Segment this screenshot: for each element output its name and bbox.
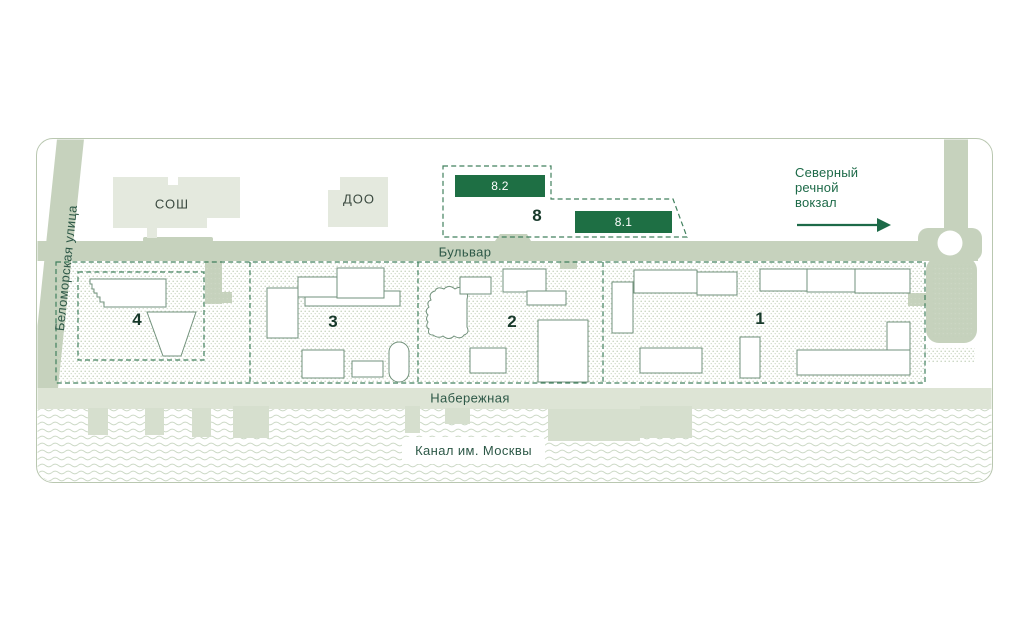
building-8-1[interactable]: 8.1	[575, 211, 672, 233]
canal-label-box: Канал им. Москвы	[402, 437, 545, 464]
building-8-2-label: 8.2	[491, 179, 509, 193]
plot-4-number[interactable]: 4	[132, 310, 141, 330]
canal-label: Канал им. Москвы	[415, 443, 532, 458]
plot-2-number[interactable]: 2	[507, 312, 516, 332]
building-8-2[interactable]: 8.2	[455, 175, 545, 197]
kindergarten-label: ДОО	[343, 192, 375, 207]
boulevard-road	[31, 241, 978, 261]
plot-1-number[interactable]: 1	[755, 309, 764, 329]
right-street-road	[944, 139, 968, 235]
right-arrow-icon	[797, 218, 891, 232]
plot-3-number[interactable]: 3	[328, 312, 337, 332]
river-terminal-label: Северный речной вокзал	[795, 165, 858, 210]
boulevard-label: Бульвар	[439, 245, 492, 260]
building-8-1-label: 8.1	[615, 215, 633, 229]
embankment-band	[31, 388, 993, 409]
embankment-label: Набережная	[430, 391, 510, 406]
plot-8-number[interactable]: 8	[532, 206, 541, 226]
roundabout-island	[938, 231, 963, 256]
site-plan-map: 8.2 8.1 СОШ ДОО Бульвар Набережная Канал…	[0, 0, 1024, 633]
school-label: СОШ	[155, 197, 189, 212]
